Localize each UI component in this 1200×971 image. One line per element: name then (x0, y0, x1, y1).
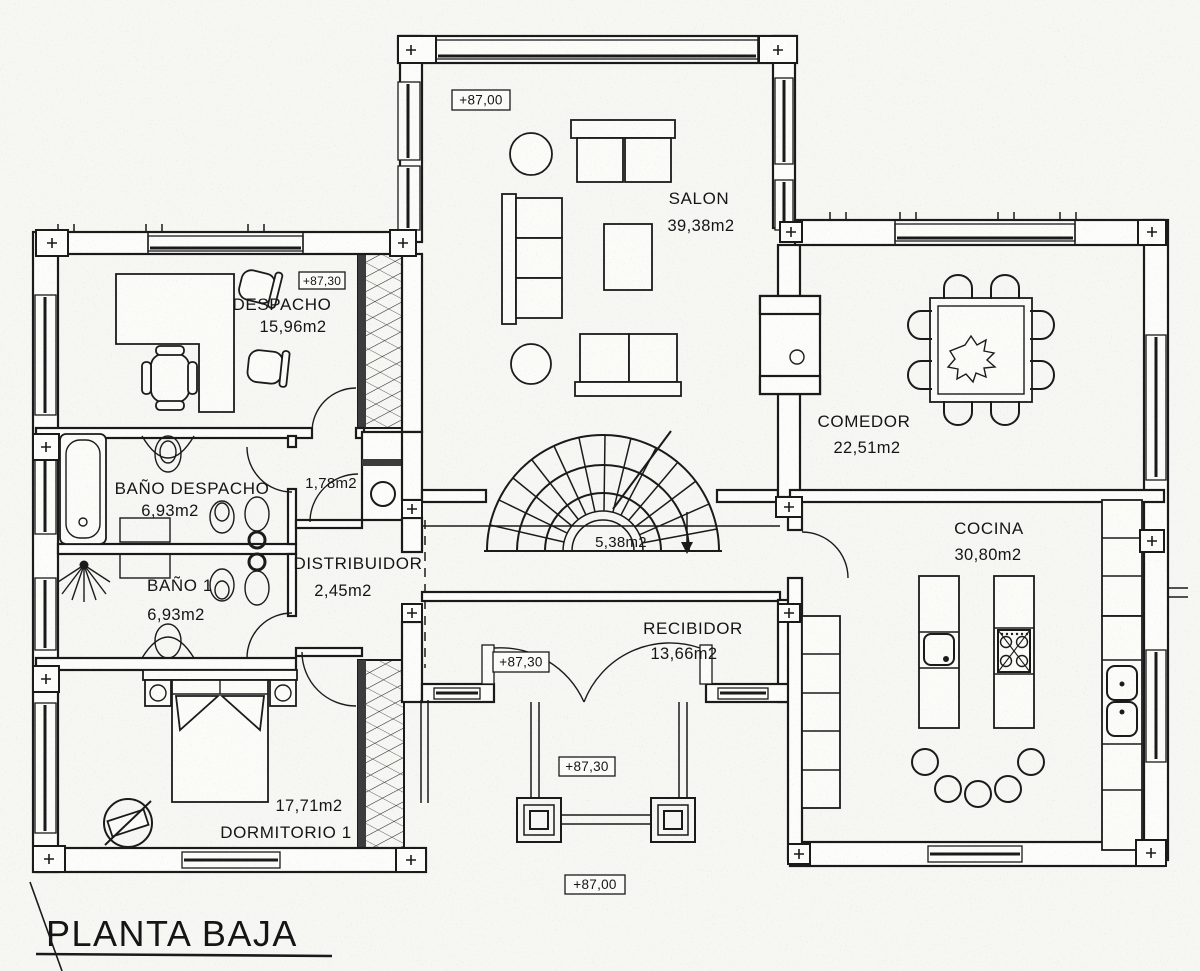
floor-plan-drawing: SALON 39,38m2 DESPACHO 15,96m2 BAÑO DESP… (0, 0, 1200, 971)
bano-despacho-label: BAÑO DESPACHO (115, 479, 270, 498)
bano-despacho-area: 6,93m2 (141, 502, 198, 520)
kitchen-island (994, 576, 1034, 728)
pillar (398, 36, 436, 63)
coffee-table (604, 224, 652, 290)
svg-text:+87,00: +87,00 (459, 93, 502, 108)
round-table (511, 344, 551, 384)
pillar (788, 844, 810, 864)
sofa (571, 120, 675, 182)
cocina-label: COCINA (954, 519, 1024, 538)
guest-chair (246, 347, 290, 387)
distribuidor-area: 2,45m2 (314, 582, 371, 600)
distribuidor-label: DISTRIBUIDOR (293, 554, 422, 573)
kitchen-cabinets (1102, 500, 1142, 616)
pillar (1136, 840, 1166, 866)
elevation-badge: +87,00 (452, 90, 510, 110)
elevation-badge: +87,30 (493, 652, 549, 672)
hall-closet-area: 1,78m2 (305, 475, 357, 492)
wardrobe-hatch-upper (358, 254, 404, 428)
wardrobe-hatch-lower (358, 660, 404, 848)
pillar (780, 222, 802, 242)
kitchen-island (919, 576, 959, 728)
fireplace (760, 296, 820, 394)
dining-table (930, 298, 1032, 402)
elevation-badge: +87,30 (559, 757, 615, 776)
pillar (36, 230, 68, 256)
recibidor-area: 13,66m2 (650, 645, 717, 663)
sofa (575, 334, 681, 396)
bano-1-label: BAÑO 1 (147, 576, 213, 595)
nightstand (145, 680, 171, 706)
bathtub (60, 434, 106, 544)
bano-1-area: 6,93m2 (147, 606, 204, 624)
elevation-badge: +87,30 (299, 272, 345, 289)
page-title: PLANTA BAJA (46, 913, 298, 954)
pillar (1138, 220, 1166, 245)
pillar (33, 434, 59, 460)
pillar (402, 500, 422, 518)
pillar (396, 848, 426, 872)
salon-label: SALON (669, 189, 730, 208)
cocina-area: 30,80m2 (954, 546, 1021, 564)
elevation-badge: +87,00 (565, 875, 625, 894)
svg-text:+87,30: +87,30 (303, 274, 341, 288)
dormitorio-1-label: DORMITORIO 1 (220, 823, 352, 842)
dormitorio-1-area: 17,71m2 (275, 797, 342, 815)
pillar (33, 846, 65, 872)
recibidor-label: RECIBIDOR (643, 619, 743, 638)
nightstand (270, 680, 296, 706)
salon-area: 39,38m2 (667, 217, 734, 235)
pillar (776, 497, 802, 517)
floor-plan-page: SALON 39,38m2 DESPACHO 15,96m2 BAÑO DESP… (0, 0, 1200, 971)
comedor-area: 22,51m2 (833, 439, 900, 457)
sofa (502, 194, 562, 324)
headboard (143, 670, 297, 680)
stair-area: 5,38m2 (595, 534, 647, 551)
pillar (402, 604, 422, 622)
svg-text:+87,00: +87,00 (573, 877, 616, 892)
comedor-label: COMEDOR (818, 412, 911, 431)
pillar (778, 604, 800, 622)
svg-text:+87,30: +87,30 (565, 759, 608, 774)
comedor-furniture (908, 275, 1054, 425)
pillar (1140, 530, 1164, 552)
kitchen-cabinets (802, 616, 840, 808)
pillar (33, 666, 59, 692)
kitchen-counter (1102, 616, 1142, 850)
pillar (390, 230, 416, 256)
pillar (759, 36, 797, 63)
despacho-label: DESPACHO (233, 295, 332, 314)
round-table (510, 133, 552, 175)
despacho-area: 15,96m2 (259, 318, 326, 336)
utility-closet (362, 432, 404, 520)
svg-text:+87,30: +87,30 (499, 655, 542, 670)
